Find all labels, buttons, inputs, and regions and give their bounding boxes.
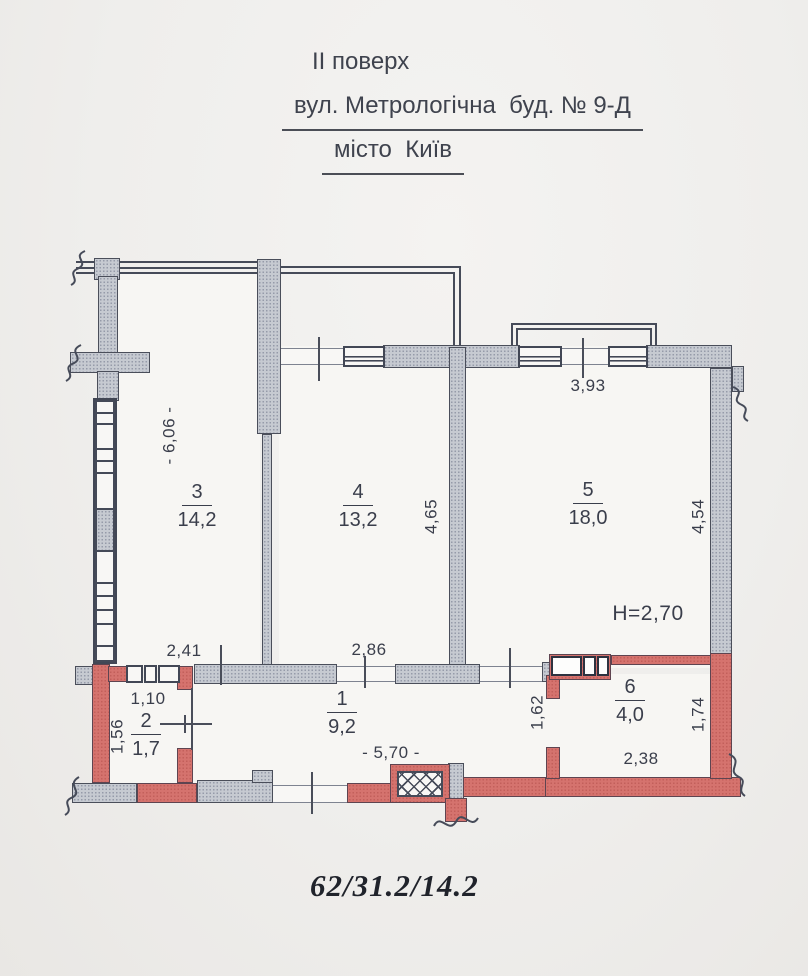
break-line-icon [433,810,479,834]
room-area: 1,7 [120,735,172,759]
dim-110: 1,10 [118,690,178,707]
balcony-outline-room4-inner [281,272,455,346]
window-room2-pane-3 [158,665,180,683]
address-title: вул. Метрологічна буд. № 9-Д [282,92,643,131]
room2-door-edge-line [191,688,193,750]
dimension-tick [311,772,313,814]
window-room5-right [608,346,648,367]
room-4-label: 4 13,2 [330,482,386,530]
glazing-pane [97,597,113,609]
break-line-icon [724,753,750,797]
room-number: 4 [343,482,372,506]
wall-red-bottom-2 [347,783,392,803]
room-area: 18,0 [560,504,616,528]
opening-entry-bottom [273,785,347,803]
room-number: 5 [573,480,602,504]
room-6-label: 6 4,0 [603,677,657,725]
wall-bottom-gray-2 [197,780,273,803]
dimension-tick [220,645,222,685]
floor-title: ІІ поверх [312,48,409,76]
opening-corridor-room4 [337,666,395,682]
wall-segment-in-glazing [97,510,113,550]
dimension-tick [318,337,320,381]
dimension-tick [582,338,584,378]
wall-red-room2-top-arm [108,666,128,682]
dim-286: 2,86 [333,641,405,658]
break-line-icon [728,386,754,422]
dimension-tick [509,648,511,688]
break-line-icon [60,344,86,382]
wall-red-room6-top-thin [611,655,712,665]
dim-162: 1,62 [529,678,546,748]
dim-393: 3,93 [553,377,623,394]
area-summary: 62/31.2/14.2 [310,868,479,904]
room-number: 3 [182,482,211,506]
dim-570: - 5,70 - [341,744,441,761]
glazing-pane [97,552,113,582]
glazing-pane [97,584,113,595]
vent-shaft-hatch [397,771,443,797]
room-3-fill [100,274,260,668]
wall-bottom-gray-step [252,770,273,783]
glazing-pane [97,414,113,423]
glazing-pane [97,462,113,472]
dimension-tick [364,656,366,688]
wall-vent-gray-block [448,763,464,803]
wall-room3-room4-thin [262,434,272,666]
window-room4 [343,346,385,367]
glazing-pane [97,474,113,508]
wall-red-room6-left-bottom [546,747,560,779]
window-room5-left [518,346,562,367]
glazing-pane [97,647,113,660]
dimension-tick [184,715,186,733]
ceiling-height-label: H=2,70 [598,603,698,624]
window-room6-frame-3 [597,656,609,676]
dim-241: 2,41 [148,642,220,659]
room-area: 4,0 [603,701,657,725]
wall-left-upper [98,276,118,354]
wall-room3-room4-thick [257,259,281,434]
window-room2-pane-2 [144,665,157,683]
break-line-icon [66,250,90,286]
opening-room4-balcony-door [281,348,343,365]
opening-room5-balcony-door [562,348,608,365]
window-room2-pane-1 [126,665,143,683]
dim-174: 1,74 [690,680,707,750]
window-room6-frame-2 [583,656,596,676]
room-5-label: 5 18,0 [560,480,616,528]
glazing-pane [97,611,113,623]
wall-red-bottom-3 [463,777,547,797]
scanned-floor-plan-page: ІІ поверх вул. Метрологічна буд. № 9-Д м… [0,0,808,976]
wall-room5-top-corner [646,345,732,368]
wall-left-stub [97,371,119,401]
room-2-label: 2 1,7 [120,711,172,759]
room-1-label: 1 9,2 [314,689,370,737]
dim-454: 4,54 [690,477,707,557]
room-area: 14,2 [169,506,225,530]
window-wall-left-glazed [93,398,117,664]
wall-red-room6-bottom [545,777,741,797]
room-3-label: 3 14,2 [169,482,225,530]
wall-red-room2-right-bottom [177,748,193,783]
wall-corridor-top-3 [395,664,480,684]
wall-room4-room5 [449,347,466,666]
dim-465: 4,65 [423,477,440,557]
glazing-pane [97,402,113,412]
wall-corridor-top-2 [194,664,337,684]
break-line-icon [60,776,84,816]
room-number: 2 [131,711,160,735]
room-area: 13,2 [330,506,386,530]
balcony-outline-room5-inner [516,328,652,347]
glazing-pane [97,625,113,645]
room-number: 1 [327,689,356,713]
room-area: 9,2 [314,713,370,737]
wall-red-bottom-1 [137,783,197,803]
glazing-pane [97,425,113,448]
city-title: місто Київ [322,136,464,175]
window-room6-frame-1 [551,656,582,676]
dim-238: 2,38 [610,750,672,767]
room-number: 6 [615,677,644,701]
glazing-pane [97,450,113,460]
